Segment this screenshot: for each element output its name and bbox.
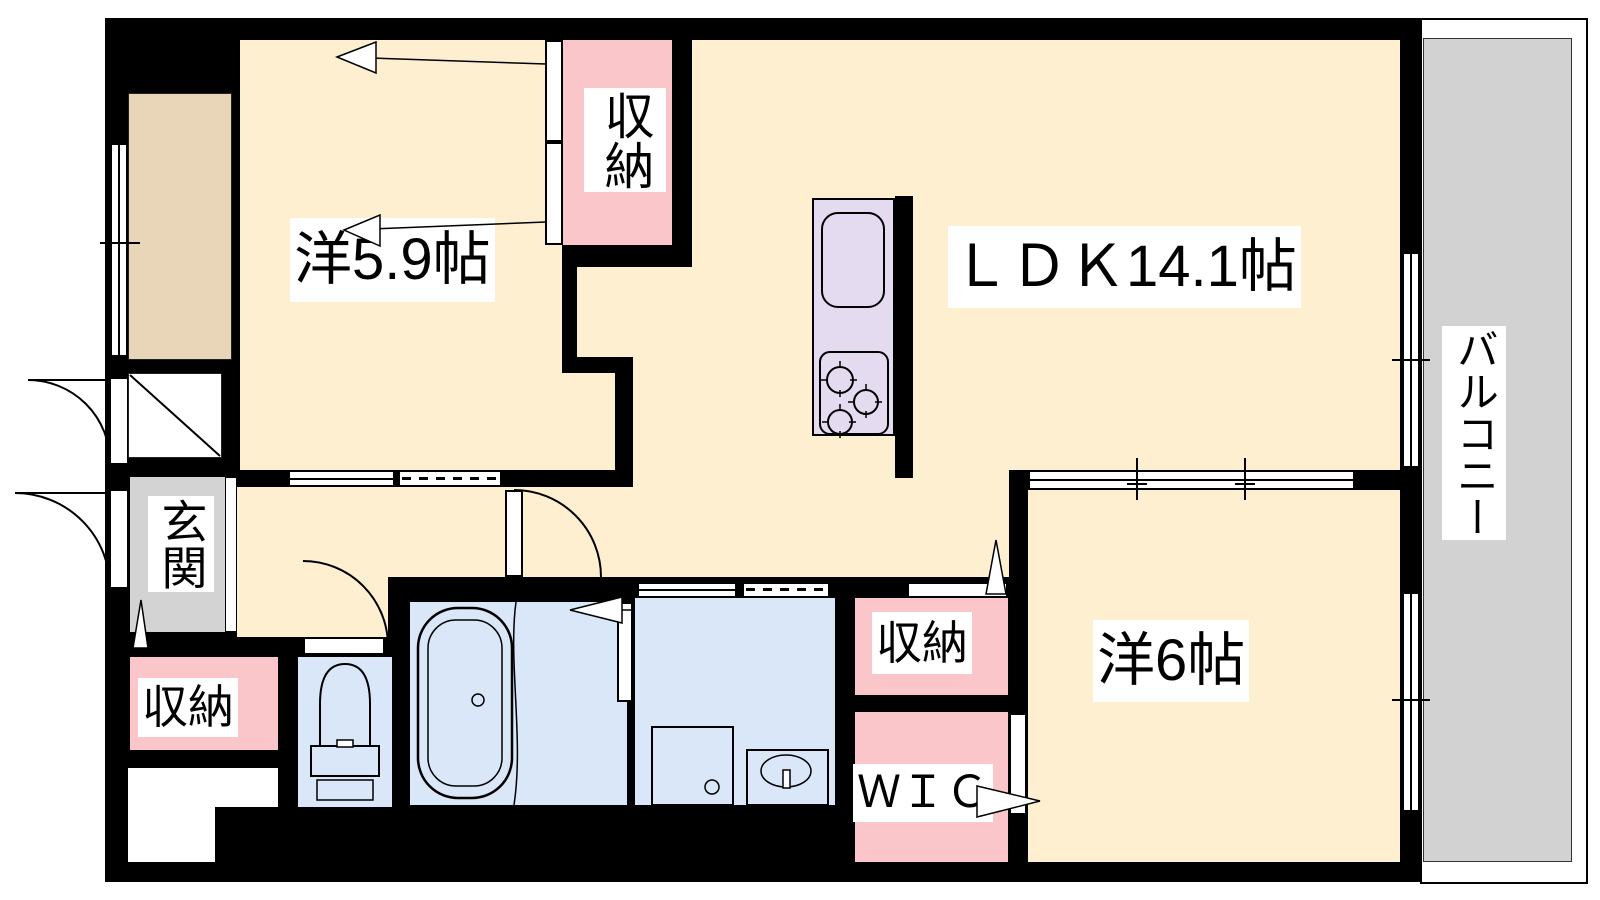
door-wic <box>1009 713 1027 815</box>
window-bedroom2-balcony <box>1402 592 1420 812</box>
hallway <box>237 577 388 637</box>
room-label-wic: ＷＩＣ <box>853 764 993 822</box>
entrance-side-strip <box>225 477 237 632</box>
room-ldk <box>633 470 1009 577</box>
sliding-door-pocket-washroom <box>742 582 830 598</box>
sliding-door-bedroom1 <box>288 470 395 487</box>
room-label-western-5-9: 洋5.9帖 <box>290 218 495 302</box>
alcove <box>128 93 232 360</box>
sliding-door-washroom <box>637 582 737 598</box>
room-western-5-9 <box>240 373 615 470</box>
kitchen-wall <box>895 196 913 478</box>
meter-box <box>128 373 222 458</box>
window-left <box>110 143 128 357</box>
room-label-ldk: ＬＤＫ14.1帖 <box>948 226 1301 308</box>
floorplan: 洋5.9帖 ＬＤＫ14.1帖 洋6帖 バルコニー 玄関 収納 収納 収納 ＷＩＣ <box>0 0 1600 900</box>
room-label-closet-left: 収納 <box>138 678 238 737</box>
closet-top-door-panel <box>545 142 563 245</box>
washroom <box>635 598 835 805</box>
bathroom <box>410 602 627 805</box>
toilet-room <box>298 657 392 807</box>
room-western-5-9 <box>240 40 545 245</box>
door-opening-entrance <box>110 490 128 588</box>
building-notch <box>128 768 278 807</box>
room-label-closet-mid: 収納 <box>872 612 972 674</box>
window-ldk-balcony <box>1402 252 1420 468</box>
door-toilet <box>303 637 385 655</box>
door-bath <box>617 602 633 702</box>
room-label-balcony: バルコニー <box>1442 326 1506 540</box>
door-opening-meter <box>110 378 128 464</box>
closet-top-door-panel <box>545 40 563 142</box>
sliding-partition-bedroom2 <box>1028 470 1355 490</box>
room-label-entrance: 玄関 <box>148 496 214 592</box>
room-label-closet-top: 収納 <box>584 88 666 192</box>
room-label-western-6: 洋6帖 <box>1093 620 1249 702</box>
room-ldk <box>577 267 692 357</box>
building-notch <box>128 807 215 862</box>
room-ldk <box>633 357 692 470</box>
door-ldk <box>505 490 523 577</box>
kitchen-counter <box>812 198 895 436</box>
sliding-door-pocket-bedroom1 <box>398 470 502 487</box>
hallway <box>237 487 633 577</box>
door-closet-mid <box>907 582 1008 598</box>
